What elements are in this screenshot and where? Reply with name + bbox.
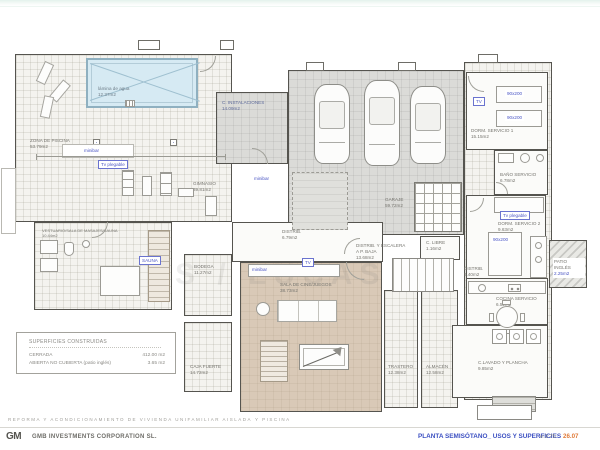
project-description: REFORMA Y ACONDICIONAMIENTO DE VIVIENDA … bbox=[8, 417, 253, 422]
sink-icon bbox=[536, 154, 544, 162]
drawing-sheet: S / LUCAS lámina de agua 12.37m2 ZONA DE… bbox=[0, 0, 600, 450]
side-table-icon bbox=[256, 302, 270, 316]
toilet-icon bbox=[64, 242, 74, 256]
room-label-distrib-servicio: DISTRIB. 5.40m2 bbox=[464, 266, 483, 278]
room-area: 1.16m2 bbox=[426, 246, 445, 252]
tv-label: TV bbox=[473, 97, 485, 106]
wine-rack-icon bbox=[260, 340, 288, 382]
tv-label: TV bbox=[302, 258, 314, 267]
pool-label: lámina de agua 12.37m2 bbox=[98, 86, 129, 98]
wall-pillar bbox=[478, 54, 498, 63]
table-icon bbox=[496, 306, 518, 328]
car-icon bbox=[410, 86, 446, 164]
room-label-trastero: TRASTERO 12.38m2 bbox=[388, 364, 413, 376]
room-area: 12.58m2 bbox=[426, 370, 448, 376]
hob-icon bbox=[508, 284, 521, 292]
room-label-distrib-centro: DISTRIB. 6.79m2 bbox=[282, 229, 301, 241]
appliance-icon bbox=[535, 242, 542, 249]
chair-icon bbox=[502, 300, 511, 305]
room-area: 6.79m2 bbox=[282, 235, 301, 241]
gym-machine-icon bbox=[142, 176, 152, 196]
car-icon bbox=[314, 84, 350, 164]
legend-label: CERRADA bbox=[29, 353, 52, 358]
legend-value: 3.65 m2 bbox=[148, 361, 165, 366]
room-area: 2.25m2 bbox=[554, 271, 584, 277]
toilet-icon bbox=[520, 153, 530, 163]
room-area: 15.15m2 bbox=[471, 134, 513, 140]
legend-superficies: SUPERFICIES CONSTRUIDAS CERRADA 412.00 m… bbox=[16, 332, 176, 374]
room-caja-fuerte bbox=[184, 322, 232, 392]
car-icon bbox=[364, 80, 400, 166]
room-area: 5.40m2 bbox=[464, 272, 483, 278]
washer-icon bbox=[492, 329, 507, 344]
room-area: 12.38m2 bbox=[388, 370, 413, 376]
sink-icon bbox=[478, 284, 486, 292]
sink-icon bbox=[82, 240, 90, 248]
gym-treadmill-icon bbox=[122, 170, 134, 196]
stamp-box bbox=[477, 405, 532, 420]
minibar-label: minibar bbox=[82, 147, 101, 154]
project-description-tail: Y PISCINA bbox=[255, 417, 291, 422]
legend-row-abierta: ABIERTA NO CUBIERTA (patio inglés) 3.65 … bbox=[29, 361, 165, 366]
room-trastero bbox=[384, 290, 418, 408]
room-label-caja-fuerte: CAJA FUERTE 14.72m2 bbox=[190, 364, 221, 376]
room-name: PATIO INGLÉS bbox=[554, 259, 584, 271]
tv-plegable-label: Tv plegable bbox=[500, 211, 530, 220]
shower-icon bbox=[40, 258, 58, 272]
dimension-line bbox=[36, 156, 226, 157]
room-area: 9.85m2 bbox=[478, 366, 528, 372]
pool-ladder-icon bbox=[125, 100, 135, 107]
chair-icon bbox=[520, 313, 525, 322]
room-label-lavado: C.LAVADO Y PLANCHA 9.85m2 bbox=[478, 360, 528, 372]
ceiling-marker-icon bbox=[170, 139, 177, 146]
room-area: 11.27m2 bbox=[194, 270, 214, 276]
gym-bench-icon bbox=[178, 188, 194, 197]
sauna-benches bbox=[148, 230, 170, 302]
wall-pillar bbox=[138, 40, 160, 50]
legend-title: SUPERFICIES CONSTRUIDAS bbox=[29, 339, 161, 348]
bed-size-label: 90x200 bbox=[491, 236, 510, 243]
stair-garage bbox=[414, 182, 462, 232]
garage-ramp bbox=[292, 172, 348, 230]
company-logo: GM bbox=[6, 431, 21, 442]
appliance-icon bbox=[535, 256, 542, 263]
massage-table-icon bbox=[100, 266, 140, 296]
sink-icon bbox=[498, 153, 514, 163]
room-label-sala: SALA DE CINE/JUEGOS 38.73m2 bbox=[280, 282, 332, 294]
stair-main bbox=[392, 258, 454, 292]
room-label-bodega: BODEGA 11.27m2 bbox=[194, 264, 214, 276]
washer-icon bbox=[526, 329, 541, 344]
legend-row-cerrada: CERRADA 412.00 m2 bbox=[29, 353, 165, 358]
sofa-icon bbox=[277, 300, 337, 322]
room-label-almacen: ALMACÉN 12.58m2 bbox=[426, 364, 448, 376]
shower-icon bbox=[40, 240, 58, 254]
legend-value: 412.00 m2 bbox=[142, 353, 165, 358]
room-label-garaje: GARAJE 59.72m2 bbox=[385, 197, 403, 209]
room-area: 59.72m2 bbox=[385, 203, 403, 209]
chair-icon bbox=[489, 313, 494, 322]
minibar-label: minibar bbox=[252, 175, 271, 182]
room-label-patio: PATIO INGLÉS 2.25m2 bbox=[553, 258, 585, 278]
room-area: 14.72m2 bbox=[190, 370, 221, 376]
room-label-gimnasio: GIMNASIO 39.81m2 bbox=[193, 181, 216, 193]
wall-pillar bbox=[398, 62, 416, 71]
room-area: 38.73m2 bbox=[280, 288, 332, 294]
room-label-dorm1: DORM. SERVICIO 1 15.15m2 bbox=[471, 128, 513, 140]
washer-icon bbox=[509, 329, 524, 344]
room-label-libre: C. LIBRE 1.16m2 bbox=[426, 240, 445, 252]
pool-label-area: 12.37m2 bbox=[98, 92, 129, 98]
company-name: GMB INVESTMENTS CORPORATION SL. bbox=[32, 434, 157, 440]
room-area: 6.78m2 bbox=[500, 178, 536, 184]
tv-plegable-label: Tv plegable bbox=[98, 160, 128, 169]
legend-label: ABIERTA NO CUBIERTA (patio inglés) bbox=[29, 361, 111, 366]
sheet-scale: e:1:75 bbox=[540, 434, 556, 440]
bed-size-label: 90x200 bbox=[505, 114, 524, 121]
top-accent-bar bbox=[0, 0, 600, 7]
minibar-label: minibar bbox=[250, 266, 269, 273]
wall-pillar bbox=[220, 40, 234, 50]
sauna-label: SAUNA bbox=[139, 256, 161, 265]
footer-divider bbox=[0, 427, 600, 428]
room-area: 14.09m2 bbox=[222, 106, 264, 112]
room-label-bano: BAÑO SERVICIO 6.78m2 bbox=[500, 172, 536, 184]
room-area: 10.44m2 bbox=[42, 233, 118, 238]
bed-size-label: 90x200 bbox=[505, 90, 524, 97]
exterior-bump-left bbox=[1, 168, 16, 234]
room-label-instalaciones: C. INSTALACIONES 14.09m2 bbox=[222, 100, 264, 112]
room-area: 39.81m2 bbox=[193, 187, 216, 193]
gym-machine-icon bbox=[205, 196, 217, 216]
sheet-date: 26.07 bbox=[563, 433, 578, 440]
wall-pillar bbox=[306, 62, 324, 71]
room-label-vestuario: VESTUARIO/SALA DE MASAJES/SAUNA 10.44m2 bbox=[42, 228, 118, 238]
gym-machine-icon bbox=[160, 172, 172, 196]
